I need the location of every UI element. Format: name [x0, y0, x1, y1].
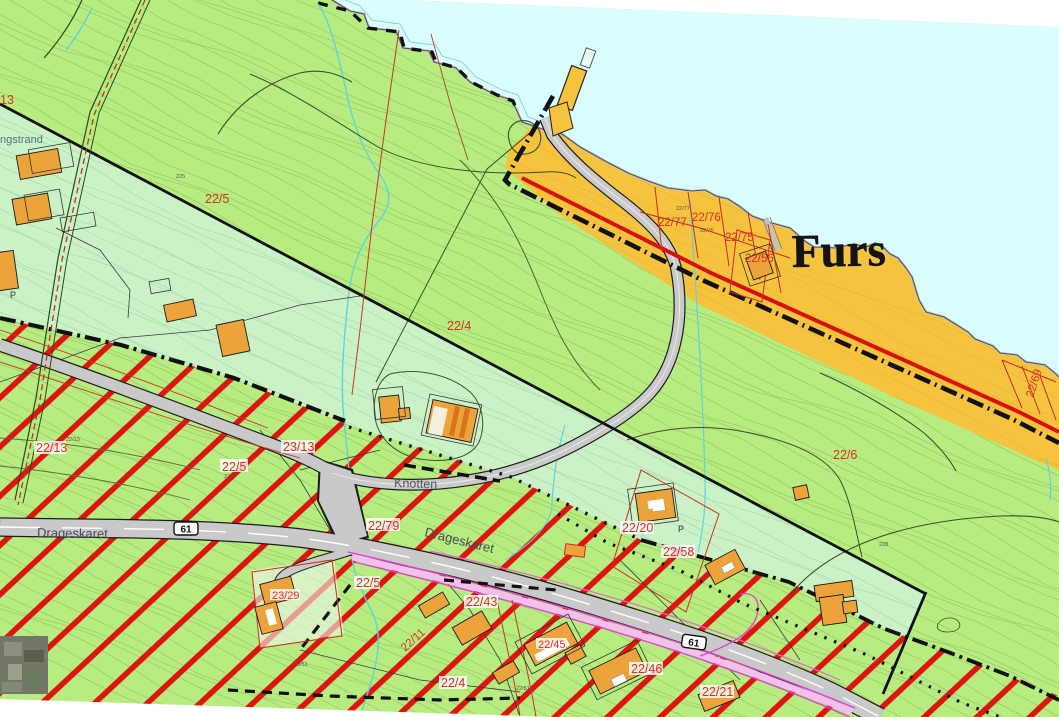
svg-text:P: P: [678, 524, 684, 534]
svg-text:22/4: 22/4: [447, 319, 471, 333]
svg-text:23/29: 23/29: [272, 590, 300, 602]
svg-text:22/75: 22/75: [725, 232, 754, 244]
svg-text:22/21: 22/21: [702, 685, 733, 699]
svg-text:22/6: 22/6: [833, 448, 857, 462]
svg-text:22/4: 22/4: [441, 676, 465, 690]
svg-text:22/45: 22/45: [538, 639, 566, 651]
svg-text:22/5: 22/5: [222, 460, 246, 474]
svg-text:Drageskaret: Drageskaret: [37, 525, 108, 541]
svg-text:22/46: 22/46: [631, 662, 662, 676]
svg-text:22/76: 22/76: [692, 212, 721, 224]
svg-text:22/20: 22/20: [622, 521, 653, 535]
svg-text:22/58: 22/58: [663, 545, 694, 559]
svg-text:22/79: 22/79: [368, 519, 399, 533]
svg-text:22/56: 22/56: [745, 253, 774, 265]
svg-text:61: 61: [687, 637, 700, 650]
svg-text:22/51: 22/51: [516, 686, 530, 692]
svg-text:22/77: 22/77: [676, 206, 690, 212]
svg-text:61: 61: [180, 525, 192, 536]
svg-text:22/5: 22/5: [205, 192, 229, 206]
svg-text:23/13: 23/13: [283, 440, 314, 454]
svg-text:Furs: Furs: [791, 224, 886, 278]
svg-text:22/77: 22/77: [658, 217, 687, 229]
svg-text:22/43: 22/43: [466, 595, 497, 609]
svg-text:225: 225: [176, 174, 185, 180]
svg-text:22/5: 22/5: [224, 474, 235, 480]
svg-text:ngstrand: ngstrand: [0, 134, 43, 146]
svg-text:22/13: 22/13: [66, 437, 80, 443]
svg-text:13: 13: [0, 93, 14, 107]
svg-text:P: P: [10, 290, 16, 300]
svg-text:Knotten: Knotten: [394, 476, 438, 491]
svg-text:22/13: 22/13: [36, 441, 67, 455]
svg-text:22/76: 22/76: [700, 228, 714, 234]
svg-text:20/51: 20/51: [294, 662, 308, 668]
svg-text:228: 228: [879, 542, 888, 548]
svg-text:22/5: 22/5: [356, 576, 380, 590]
